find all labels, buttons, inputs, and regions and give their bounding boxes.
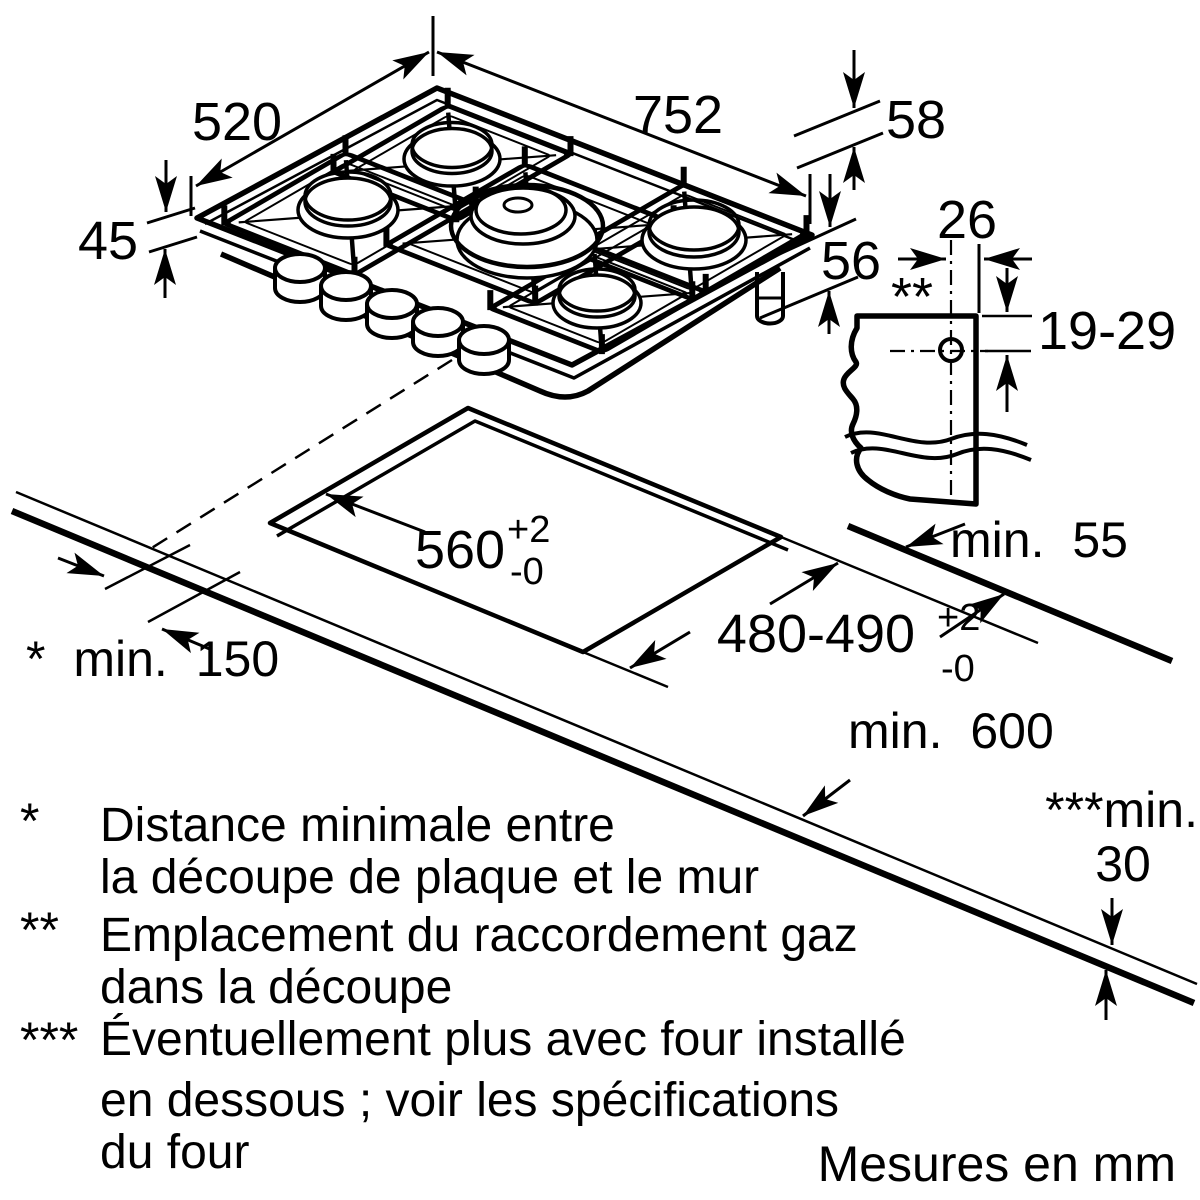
- label-min30-prefix: ***min.: [1045, 782, 1198, 838]
- label-min55: min. 55: [950, 512, 1128, 568]
- installation-diagram-page: 520 752 45 58 56 26 ** 19-29 min. 55 560…: [0, 0, 1200, 1200]
- legend-3-line-1: Éventuellement plus avec four installé: [100, 1013, 906, 1066]
- legend-2-line-1: Emplacement du raccordement gaz: [100, 909, 858, 962]
- label-480-tol-plus: +2: [937, 597, 980, 639]
- legend-1-line-1: Distance minimale entre: [100, 799, 615, 852]
- label-560-tol-minus: -0: [510, 551, 544, 593]
- label-19-29: 19-29: [1038, 301, 1176, 361]
- label-58: 58: [886, 90, 946, 150]
- installation-diagram: 520 752 45 58 56 26 ** 19-29 min. 55 560…: [0, 0, 1200, 1200]
- label-gas-marker: **: [891, 267, 933, 327]
- label-480-490: 480-490: [717, 604, 915, 664]
- knob-2: [321, 272, 371, 320]
- label-480-tol-minus: -0: [941, 648, 975, 690]
- label-min600: min. 600: [848, 703, 1054, 759]
- label-56: 56: [821, 231, 881, 291]
- label-45: 45: [78, 211, 138, 271]
- burner-right: [642, 200, 746, 269]
- label-752: 752: [633, 85, 723, 145]
- legend-3-line-3: du four: [100, 1126, 249, 1179]
- legend-1-line-2: la découpe de plaque et le mur: [100, 851, 759, 904]
- legend-marker-2: **: [20, 902, 59, 958]
- legend-marker-1: *: [20, 793, 39, 849]
- label-min30-value: 30: [1095, 836, 1151, 892]
- units-note: Mesures en mm: [818, 1136, 1176, 1192]
- legend: * Distance minimale entre la découpe de …: [20, 793, 1176, 1192]
- label-560-tol-plus: +2: [507, 509, 550, 551]
- label-560: 560: [415, 520, 505, 580]
- label-26: 26: [937, 190, 997, 250]
- burner-center-wok: [451, 185, 603, 278]
- legend-marker-3: ***: [20, 1012, 78, 1068]
- burner-front-center: [553, 269, 641, 328]
- knob-5: [459, 326, 509, 374]
- burner-back-left: [404, 123, 500, 187]
- legend-2-line-2: dans la découpe: [100, 961, 452, 1014]
- label-520: 520: [192, 92, 282, 152]
- legend-3-line-2: en dessous ; voir les spécifications: [100, 1074, 839, 1127]
- label-min150: * min. 150: [26, 631, 279, 687]
- burner-left: [298, 172, 398, 238]
- knob-4: [413, 308, 463, 356]
- knob-3: [367, 290, 417, 338]
- knob-1: [275, 254, 325, 302]
